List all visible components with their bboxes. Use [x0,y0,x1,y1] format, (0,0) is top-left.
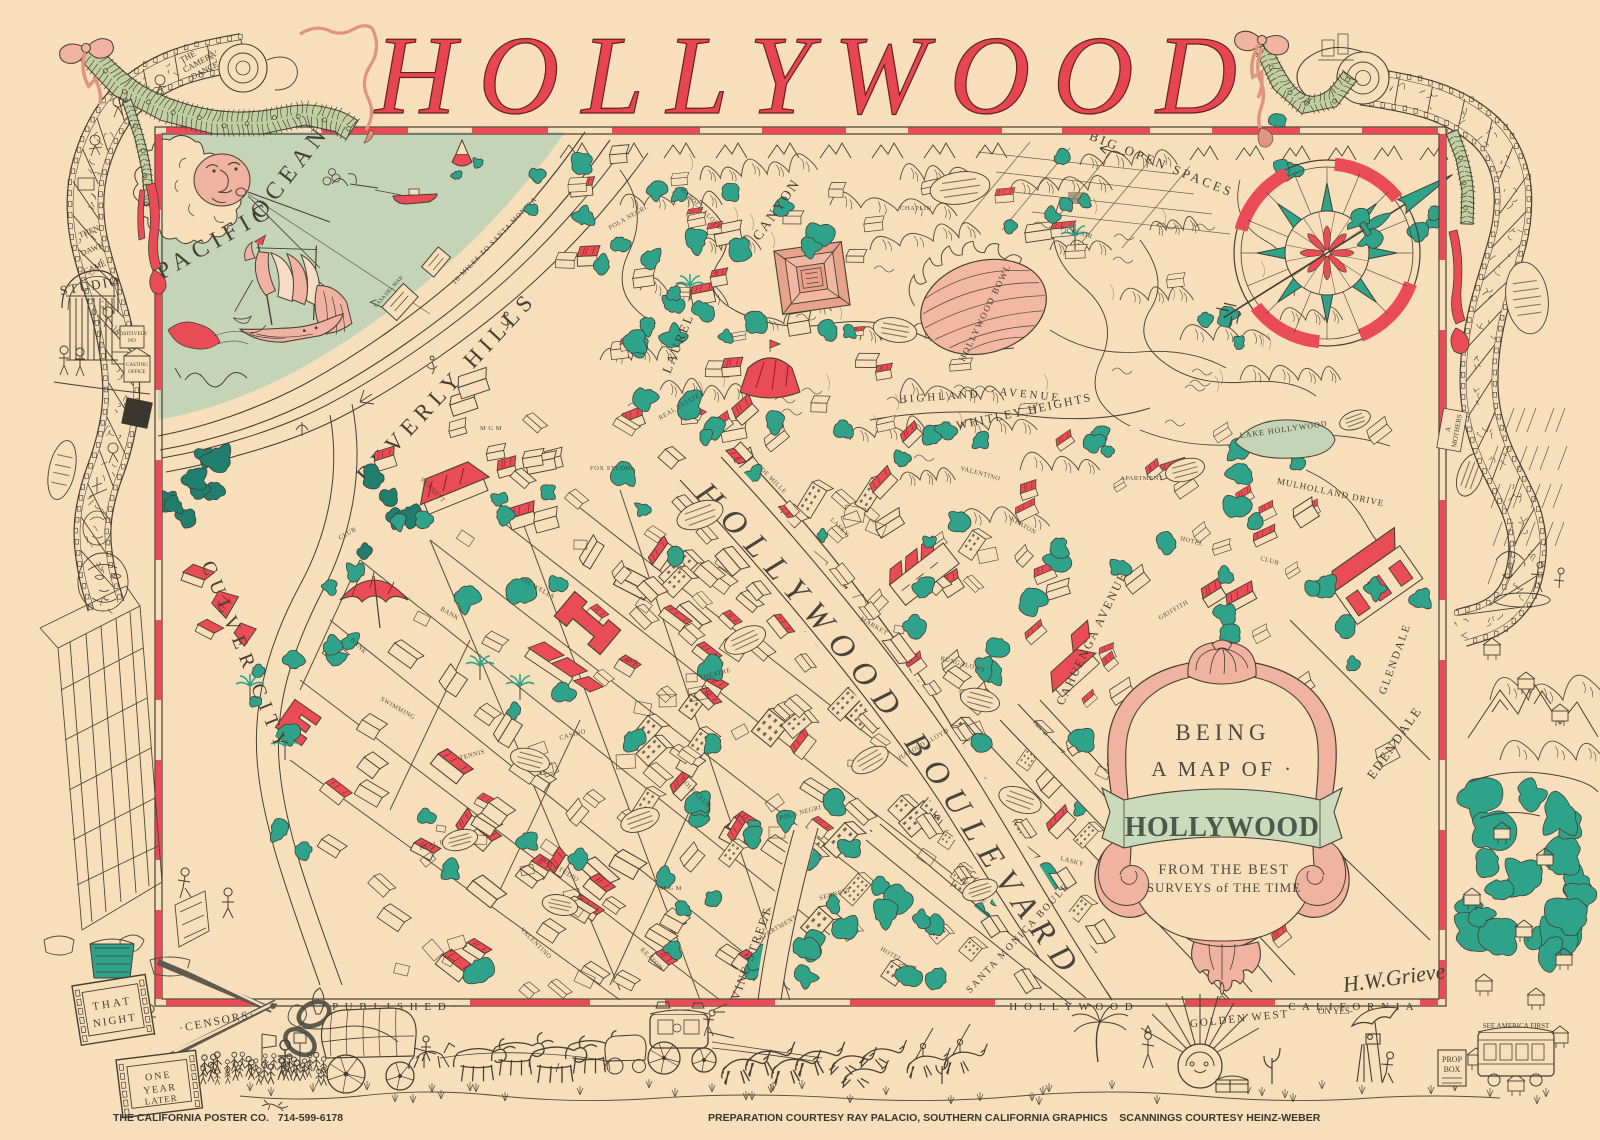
svg-text:NO: NO [128,338,136,344]
svg-text:HOLLYWOOD: HOLLYWOOD [1125,812,1320,843]
svg-text:M G M: M G M [480,425,502,432]
svg-text:POSITIVELY: POSITIVELY [116,331,147,337]
svg-text:SEE AMERICA FIRST: SEE AMERICA FIRST [1483,1022,1550,1030]
svg-text:BEING: BEING [1175,720,1270,745]
svg-text:A MAP OF ·: A MAP OF · [1151,757,1294,781]
svg-text:CHAPLIN: CHAPLIN [900,205,932,212]
svg-text:PROP: PROP [1442,1055,1463,1064]
svg-text:OFFICE: OFFICE [128,370,145,375]
svg-text:ON YES-: ON YES- [1318,1006,1353,1016]
svg-text:M G M: M G M [660,885,682,892]
svg-text:FOX STUDIO: FOX STUDIO [590,465,633,472]
svg-text:SURVEYS of THE TIME: SURVEYS of THE TIME [1147,880,1301,895]
svg-text:H O L L Y W O O D: H O L L Y W O O D [1009,1001,1134,1013]
svg-text:APARTMENT: APARTMENT [1120,475,1163,482]
svg-text:PREPARATION COURTESY RAY PALAC: PREPARATION COURTESY RAY PALACIO, SOUTHE… [708,1112,1321,1124]
svg-text:FROM THE BEST: FROM THE BEST [1158,862,1289,878]
svg-text:HOLLYWOOD: HOLLYWOOD [373,14,1237,138]
svg-text:THE CALIFORNIA POSTER CO. 71: THE CALIFORNIA POSTER CO. 714-599-6178 [113,1112,343,1124]
svg-text:BOX: BOX [1444,1065,1461,1074]
svg-text:CASTING: CASTING [126,363,148,368]
